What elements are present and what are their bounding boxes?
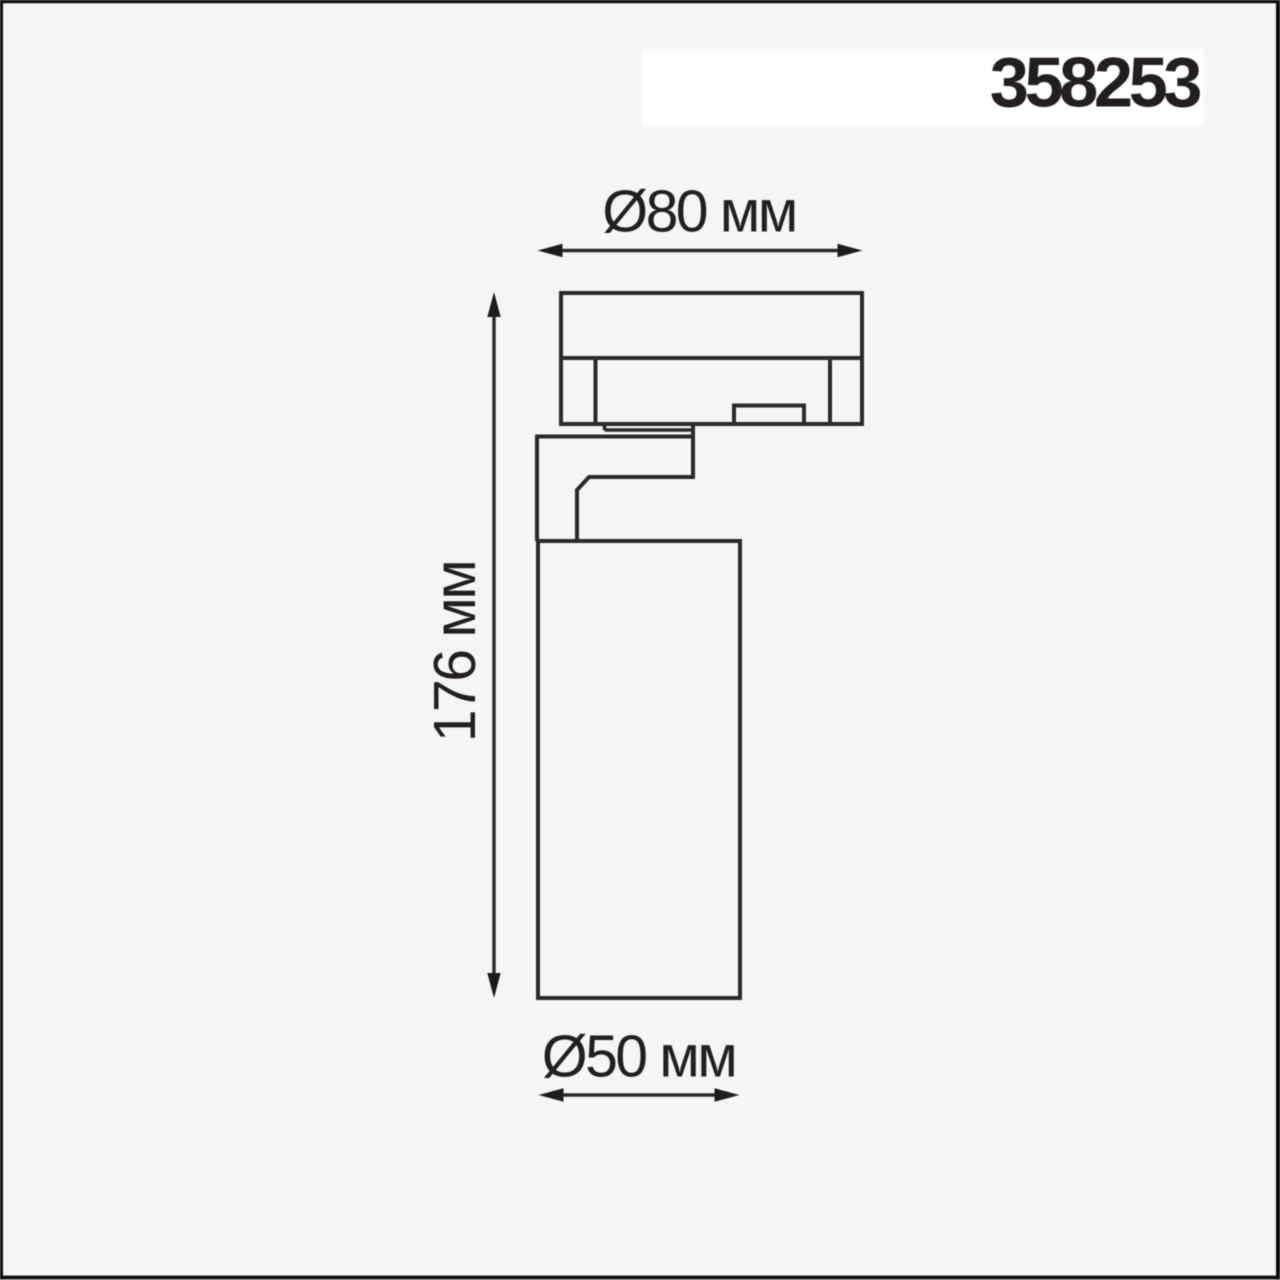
svg-text:176 мм: 176 мм <box>422 562 488 742</box>
svg-text:Ø80 мм: Ø80 мм <box>602 179 795 245</box>
svg-text:358253: 358253 <box>990 43 1201 122</box>
svg-text:Ø50 мм: Ø50 мм <box>542 1024 735 1090</box>
